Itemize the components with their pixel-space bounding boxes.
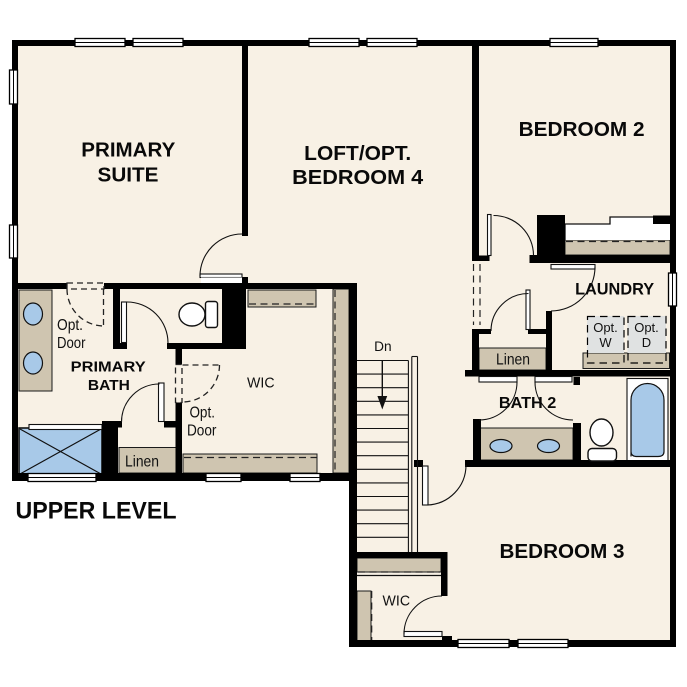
svg-text:UPPER LEVEL: UPPER LEVEL xyxy=(16,498,177,525)
svg-text:Linen: Linen xyxy=(125,453,159,470)
svg-text:LAUNDRY: LAUNDRY xyxy=(575,280,655,299)
svg-text:BEDROOM 4: BEDROOM 4 xyxy=(292,167,424,189)
svg-text:Opt.: Opt. xyxy=(57,317,83,334)
svg-text:Opt.: Opt. xyxy=(189,405,215,422)
svg-text:Door: Door xyxy=(57,335,86,352)
svg-text:BEDROOM 3: BEDROOM 3 xyxy=(500,541,625,563)
svg-text:Opt.: Opt. xyxy=(593,320,618,335)
svg-text:W: W xyxy=(599,335,612,350)
svg-text:SUITE: SUITE xyxy=(98,164,159,186)
svg-text:LOFT/OPT.: LOFT/OPT. xyxy=(304,143,411,165)
svg-text:Linen: Linen xyxy=(496,352,530,369)
svg-text:BATH 2: BATH 2 xyxy=(499,395,557,412)
svg-text:BATH: BATH xyxy=(88,377,130,394)
svg-text:Opt.: Opt. xyxy=(634,320,659,335)
svg-text:PRIMARY: PRIMARY xyxy=(71,359,146,376)
svg-text:Door: Door xyxy=(187,423,217,440)
svg-text:PRIMARY: PRIMARY xyxy=(81,140,176,162)
svg-text:D: D xyxy=(642,335,651,350)
svg-text:WIC: WIC xyxy=(247,375,275,392)
svg-text:Dn: Dn xyxy=(374,339,392,354)
svg-text:BEDROOM 2: BEDROOM 2 xyxy=(519,119,645,141)
svg-text:WIC: WIC xyxy=(383,593,411,610)
